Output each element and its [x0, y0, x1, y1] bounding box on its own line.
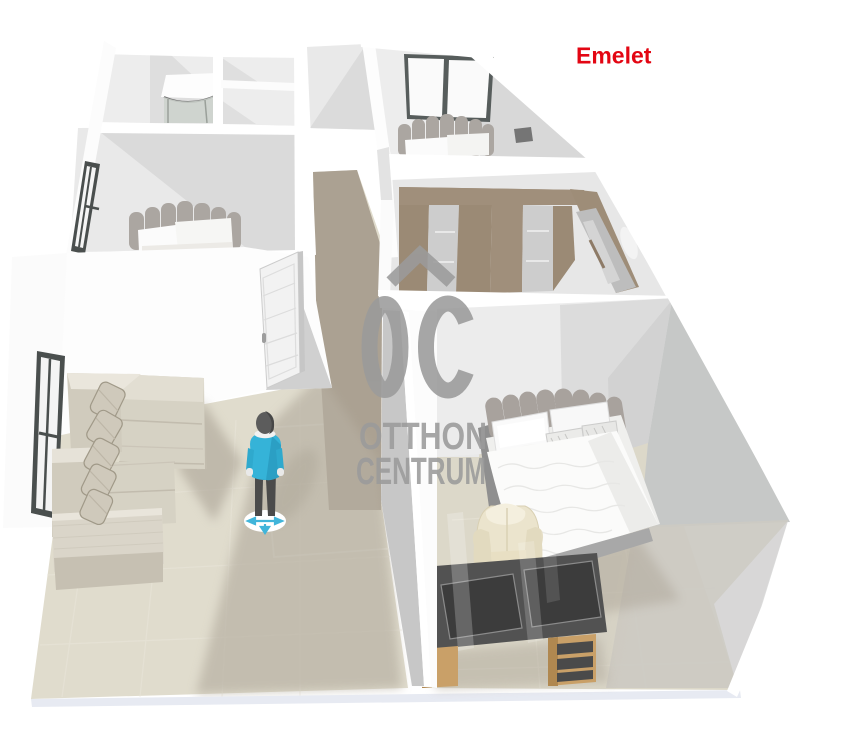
svg-text:Emelet: Emelet: [576, 43, 652, 69]
svg-text:CENTRUM: CENTRUM: [356, 451, 486, 493]
